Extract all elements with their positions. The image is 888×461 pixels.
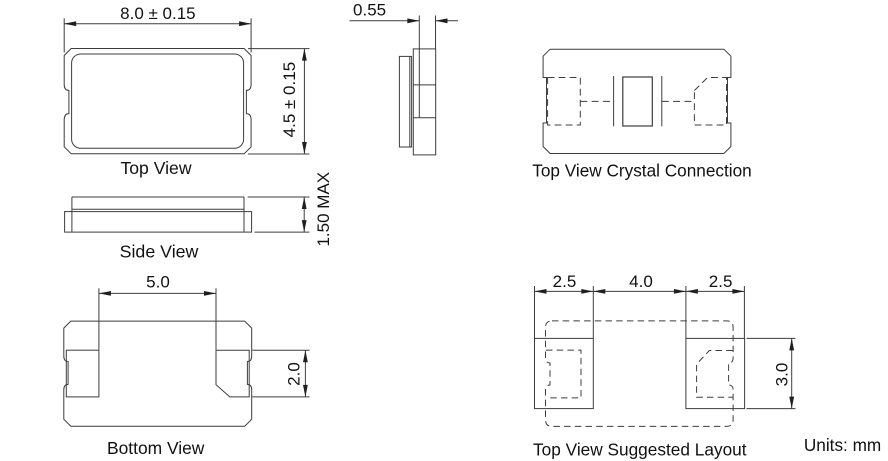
svg-text:8.0 ± 0.15: 8.0 ± 0.15 (120, 4, 196, 23)
svg-text:Top View Suggested Layout: Top View Suggested Layout (533, 439, 747, 459)
svg-text:5.0: 5.0 (146, 272, 170, 291)
svg-text:Units: mm: Units: mm (804, 435, 881, 455)
svg-text:0.55: 0.55 (353, 1, 386, 20)
svg-text:Top View: Top View (120, 158, 191, 178)
svg-text:Top View Crystal Connection: Top View Crystal Connection (532, 160, 751, 180)
svg-text:2.0: 2.0 (285, 362, 304, 386)
svg-text:2.5: 2.5 (553, 272, 577, 291)
svg-text:2.5: 2.5 (709, 272, 733, 291)
svg-text:4.0: 4.0 (629, 272, 653, 291)
svg-text:4.5 ± 0.15: 4.5 ± 0.15 (280, 62, 299, 138)
svg-text:Side View: Side View (120, 241, 199, 261)
svg-text:3.0: 3.0 (773, 363, 792, 387)
svg-text:Bottom View: Bottom View (107, 438, 205, 458)
svg-text:1.50 MAX: 1.50 MAX (314, 172, 333, 247)
